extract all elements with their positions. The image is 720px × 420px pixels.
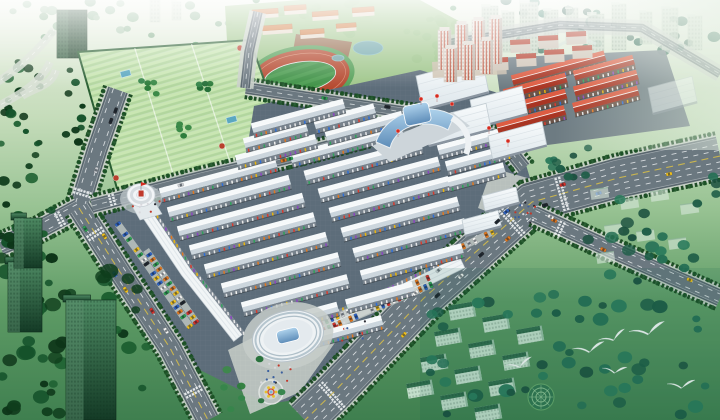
pedestrian xyxy=(364,320,366,322)
hedge-bush xyxy=(210,394,215,399)
hedge-bush xyxy=(182,341,187,346)
hedge-bush xyxy=(585,208,590,213)
hedge-bush xyxy=(77,160,82,165)
car xyxy=(384,105,390,109)
hedge-bush xyxy=(185,410,190,415)
pedestrian xyxy=(140,204,142,206)
pedestrian xyxy=(364,324,366,326)
tree xyxy=(40,381,48,388)
hedge-bush xyxy=(51,234,56,239)
tree xyxy=(131,306,140,313)
hedge-bush xyxy=(96,103,101,108)
tree xyxy=(42,407,53,416)
pedestrian xyxy=(521,204,523,206)
hedge-bush xyxy=(673,187,678,192)
pedestrian xyxy=(343,322,345,324)
pedestrian xyxy=(524,202,526,204)
hedge-bush xyxy=(166,174,171,179)
tree xyxy=(688,253,699,262)
hedge-bush xyxy=(293,103,298,108)
tree xyxy=(49,380,58,387)
tree xyxy=(122,273,135,284)
hedge-bush xyxy=(117,126,122,131)
hedge-bush xyxy=(560,237,565,242)
hedge-bush xyxy=(113,208,118,213)
hedge-bush xyxy=(590,159,595,164)
tree xyxy=(621,217,634,228)
hedge-bush xyxy=(263,98,268,103)
hedge-bush xyxy=(92,257,97,262)
tree xyxy=(564,173,574,181)
pedestrian xyxy=(341,339,343,341)
pedestrian xyxy=(518,216,520,218)
hedge-bush xyxy=(614,263,619,268)
hedge-bush xyxy=(141,332,146,337)
hedge-bush xyxy=(340,91,345,96)
hedge-bush xyxy=(343,344,348,349)
hedge-bush xyxy=(91,117,96,122)
hedge-bush xyxy=(157,357,162,362)
hedge-bush xyxy=(583,222,588,227)
pedestrian xyxy=(268,363,270,365)
hedge-bush xyxy=(531,230,536,235)
tree xyxy=(7,400,21,411)
hedge-bush xyxy=(702,181,707,186)
tree xyxy=(12,182,21,189)
pedestrian xyxy=(527,212,529,214)
pedestrian xyxy=(132,205,134,207)
hedge-bush xyxy=(355,94,360,99)
pedestrian xyxy=(526,218,528,220)
tree xyxy=(53,408,66,419)
hedge-bush xyxy=(68,219,73,224)
pedestrian xyxy=(159,200,161,202)
pedestrian xyxy=(286,380,288,382)
hedge-bush xyxy=(399,353,404,358)
green-glass-tower xyxy=(63,295,116,420)
pedestrian xyxy=(147,203,149,205)
tree xyxy=(6,109,16,117)
courtyard-tree xyxy=(176,121,183,127)
hedge-bush xyxy=(117,241,122,246)
tree xyxy=(71,127,79,134)
hedge-bush xyxy=(72,174,77,179)
green-glass-tower xyxy=(11,213,42,268)
tree xyxy=(79,104,85,109)
pedestrian xyxy=(514,211,516,213)
hedge-bush xyxy=(287,165,292,170)
pedestrian xyxy=(289,366,291,368)
hedge-bush xyxy=(203,381,208,386)
tree xyxy=(16,346,34,361)
hedge-bush xyxy=(164,371,169,376)
hedge-bush xyxy=(125,253,130,258)
hedge-bush xyxy=(410,342,415,347)
pedestrian xyxy=(529,222,531,224)
hedge-bush xyxy=(84,244,89,249)
tree xyxy=(95,270,111,283)
tree xyxy=(2,354,17,366)
tree xyxy=(642,228,652,236)
hedge-bush xyxy=(248,96,253,101)
tree xyxy=(45,298,61,311)
pedestrian xyxy=(532,219,534,221)
tree xyxy=(645,253,654,261)
hedge-bush xyxy=(125,307,130,312)
hedge-bush xyxy=(65,197,70,202)
hedge-bush xyxy=(64,227,69,232)
tree xyxy=(556,165,566,173)
hedge-bush xyxy=(532,225,537,230)
tree xyxy=(25,163,32,169)
tree xyxy=(131,284,142,293)
hedge-bush xyxy=(325,89,330,94)
tree xyxy=(13,121,21,127)
hedge-bush xyxy=(174,329,179,334)
hedge-bush xyxy=(638,247,643,252)
tree xyxy=(3,232,16,242)
car xyxy=(321,96,327,100)
hedge-bush xyxy=(98,212,103,217)
hedge-bush xyxy=(149,291,154,296)
pedestrian xyxy=(139,206,141,208)
hedge-bush xyxy=(127,98,132,103)
hedge-bush xyxy=(547,172,552,177)
courtyard-tree xyxy=(176,127,183,133)
hedge-bush xyxy=(389,363,394,368)
pedestrian xyxy=(260,381,262,383)
courtyard-tree xyxy=(153,91,160,97)
tree xyxy=(77,114,87,122)
hedge-bush xyxy=(68,189,73,194)
hedge-bush xyxy=(573,244,578,249)
hedge-bush xyxy=(604,155,609,160)
hedge-bush xyxy=(519,240,524,245)
pedestrian xyxy=(346,327,348,329)
pedestrian xyxy=(522,213,524,215)
hedge-bush xyxy=(103,169,108,174)
tree xyxy=(45,280,53,287)
pedestrian xyxy=(273,381,275,383)
tree xyxy=(237,383,246,390)
hedge-bush xyxy=(569,216,574,221)
hedge-bush xyxy=(399,100,404,105)
hedge-bush xyxy=(451,239,456,244)
hedge-bush xyxy=(510,167,515,172)
pedestrian xyxy=(514,216,516,218)
pedestrian xyxy=(362,337,364,339)
tree xyxy=(258,398,264,403)
pedestrian xyxy=(527,205,529,207)
hedge-bush xyxy=(587,250,592,255)
tree xyxy=(34,141,41,146)
hedge-bush xyxy=(180,170,185,175)
hedge-bush xyxy=(98,183,103,188)
hedge-bush xyxy=(189,355,194,360)
hedge-bush xyxy=(385,98,390,103)
hedge-bush xyxy=(379,374,384,379)
tree xyxy=(227,406,234,412)
hedge-bush xyxy=(347,407,352,412)
hedge-bush xyxy=(530,159,535,164)
hedge-bush xyxy=(312,377,317,382)
hedge-bush xyxy=(209,163,214,168)
tree xyxy=(38,354,48,363)
pedestrian xyxy=(534,206,536,208)
tree xyxy=(220,384,228,390)
pedestrian xyxy=(359,332,361,334)
tree xyxy=(655,246,667,256)
tree xyxy=(570,153,578,159)
hedge-bush xyxy=(508,250,513,255)
hedge-bush xyxy=(643,193,648,198)
tree xyxy=(614,195,625,204)
tree xyxy=(2,201,10,208)
tree xyxy=(638,209,650,219)
tree xyxy=(46,253,58,263)
pedestrian xyxy=(267,370,269,372)
hedge-bush xyxy=(278,100,283,105)
hedge-bush xyxy=(217,408,222,413)
pedestrian xyxy=(154,203,156,205)
hedge-bush xyxy=(358,396,363,401)
hedge-bush xyxy=(171,384,176,389)
hedge-bush xyxy=(368,385,373,390)
hedge-bush xyxy=(687,184,692,189)
tree xyxy=(238,395,245,401)
hedge-bush xyxy=(597,229,602,234)
pedestrian xyxy=(336,324,338,326)
pedestrian xyxy=(278,364,280,366)
hedge-bush xyxy=(93,192,98,197)
hedge-bush xyxy=(333,355,338,360)
hedge-bush xyxy=(178,397,183,402)
tree xyxy=(121,341,136,354)
hedge-bush xyxy=(116,294,121,299)
tree xyxy=(47,207,56,214)
tree xyxy=(223,366,232,373)
hedge-bush xyxy=(571,212,576,217)
hedge-bush xyxy=(86,131,91,136)
aerial-rendering xyxy=(0,0,720,420)
hedge-bush xyxy=(109,228,114,233)
pedestrian xyxy=(272,376,274,378)
hedge-bush xyxy=(81,146,86,151)
pedestrian xyxy=(274,367,276,369)
pedestrian xyxy=(281,371,283,373)
hedge-bush xyxy=(556,210,561,215)
hedge-bush xyxy=(497,260,502,265)
hedge-bush xyxy=(195,166,200,171)
hedge-bush xyxy=(158,304,163,309)
hedge-bush xyxy=(370,96,375,101)
pedestrian xyxy=(344,328,346,330)
tree xyxy=(552,159,561,166)
pedestrian xyxy=(530,212,532,214)
right-haze-overlay xyxy=(555,0,720,150)
tree xyxy=(256,356,264,362)
tree xyxy=(657,232,667,241)
hedge-bush xyxy=(576,163,581,168)
hedge-bush xyxy=(532,176,537,181)
tree xyxy=(22,336,35,346)
hedge-bush xyxy=(290,397,295,402)
tree xyxy=(141,343,151,351)
tree xyxy=(278,389,286,395)
tree xyxy=(25,173,38,183)
hedge-bush xyxy=(546,231,551,236)
hedge-bush xyxy=(122,112,127,117)
pedestrian xyxy=(289,368,291,370)
courtyard-tree xyxy=(180,133,187,139)
tree xyxy=(19,113,28,120)
hedge-bush xyxy=(323,366,328,371)
hedge-bush xyxy=(108,189,113,194)
hedge-bush xyxy=(76,231,81,236)
tree xyxy=(628,234,637,241)
tree xyxy=(622,245,636,256)
tree xyxy=(581,171,590,178)
hedge-bush xyxy=(518,180,523,185)
tree xyxy=(657,255,668,264)
pedestrian xyxy=(150,211,152,213)
tree xyxy=(23,129,29,134)
pedestrian xyxy=(266,378,268,380)
corner-pavilion xyxy=(219,143,225,149)
tree xyxy=(138,385,146,392)
hedge-bush xyxy=(301,387,306,392)
teal-wash-overlay xyxy=(420,268,720,420)
hedge-bush xyxy=(141,279,146,284)
hedge-bush xyxy=(600,204,605,209)
courtyard-tree xyxy=(185,125,192,131)
tree xyxy=(605,232,619,243)
tree xyxy=(62,131,70,138)
hedge-bush xyxy=(224,159,229,164)
tree xyxy=(48,352,63,364)
hedge-bush xyxy=(39,212,44,217)
hedge-bush xyxy=(196,368,201,373)
tree xyxy=(692,199,702,207)
hedge-bush xyxy=(133,319,138,324)
corner-pavilion xyxy=(113,175,119,181)
hedge-bush xyxy=(112,140,117,145)
tree xyxy=(65,90,73,97)
tree xyxy=(618,227,629,236)
hedge-bush xyxy=(619,151,624,156)
hedge-bush xyxy=(166,316,171,321)
tree xyxy=(32,152,40,158)
scene-canvas xyxy=(0,0,720,420)
hedge-bush xyxy=(101,89,106,94)
tree xyxy=(74,138,83,146)
hedge-bush xyxy=(133,266,138,271)
tree xyxy=(583,235,594,244)
hedge-bush xyxy=(151,177,156,182)
pedestrian xyxy=(139,211,141,213)
tree xyxy=(47,389,56,396)
hedge-bush xyxy=(107,155,112,160)
tree xyxy=(678,240,690,250)
